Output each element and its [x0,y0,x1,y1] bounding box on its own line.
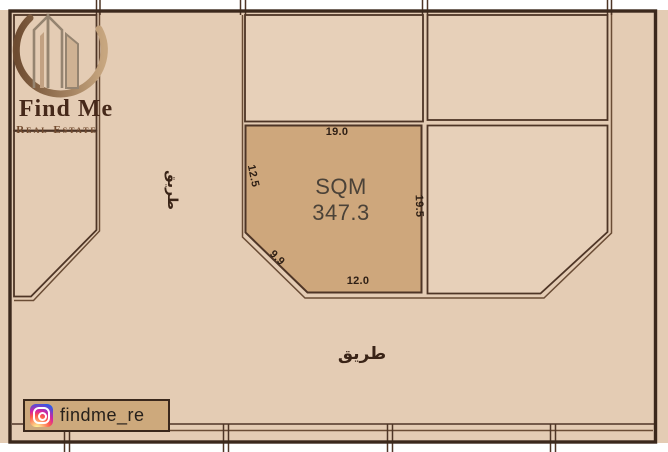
plot-area-value: 347.3 [281,200,401,226]
instagram-badge[interactable]: findme_re [23,399,170,432]
instagram-icon [30,404,53,427]
parcel-top-right [428,15,608,120]
dimension-top: 19.0 [317,126,357,138]
logo-title: Find Me [0,96,132,123]
site-plan-drawing [0,0,668,452]
dimension-right: 19.5 [412,191,425,221]
plot-area-text: SQM 347.3 [281,174,401,226]
plot-map-image: Find Me Real Estate SQM 347.3 19.0 12.5 … [0,0,668,452]
road-label-left: طريق [164,160,180,220]
dimension-bottom: 12.0 [338,275,378,287]
parcel-top-middle [245,15,423,122]
plot-area-label: SQM [281,174,401,200]
logo-subtitle: Real Estate [2,124,112,136]
instagram-handle: findme_re [60,405,145,426]
road-label-bottom: طريق [322,344,402,364]
